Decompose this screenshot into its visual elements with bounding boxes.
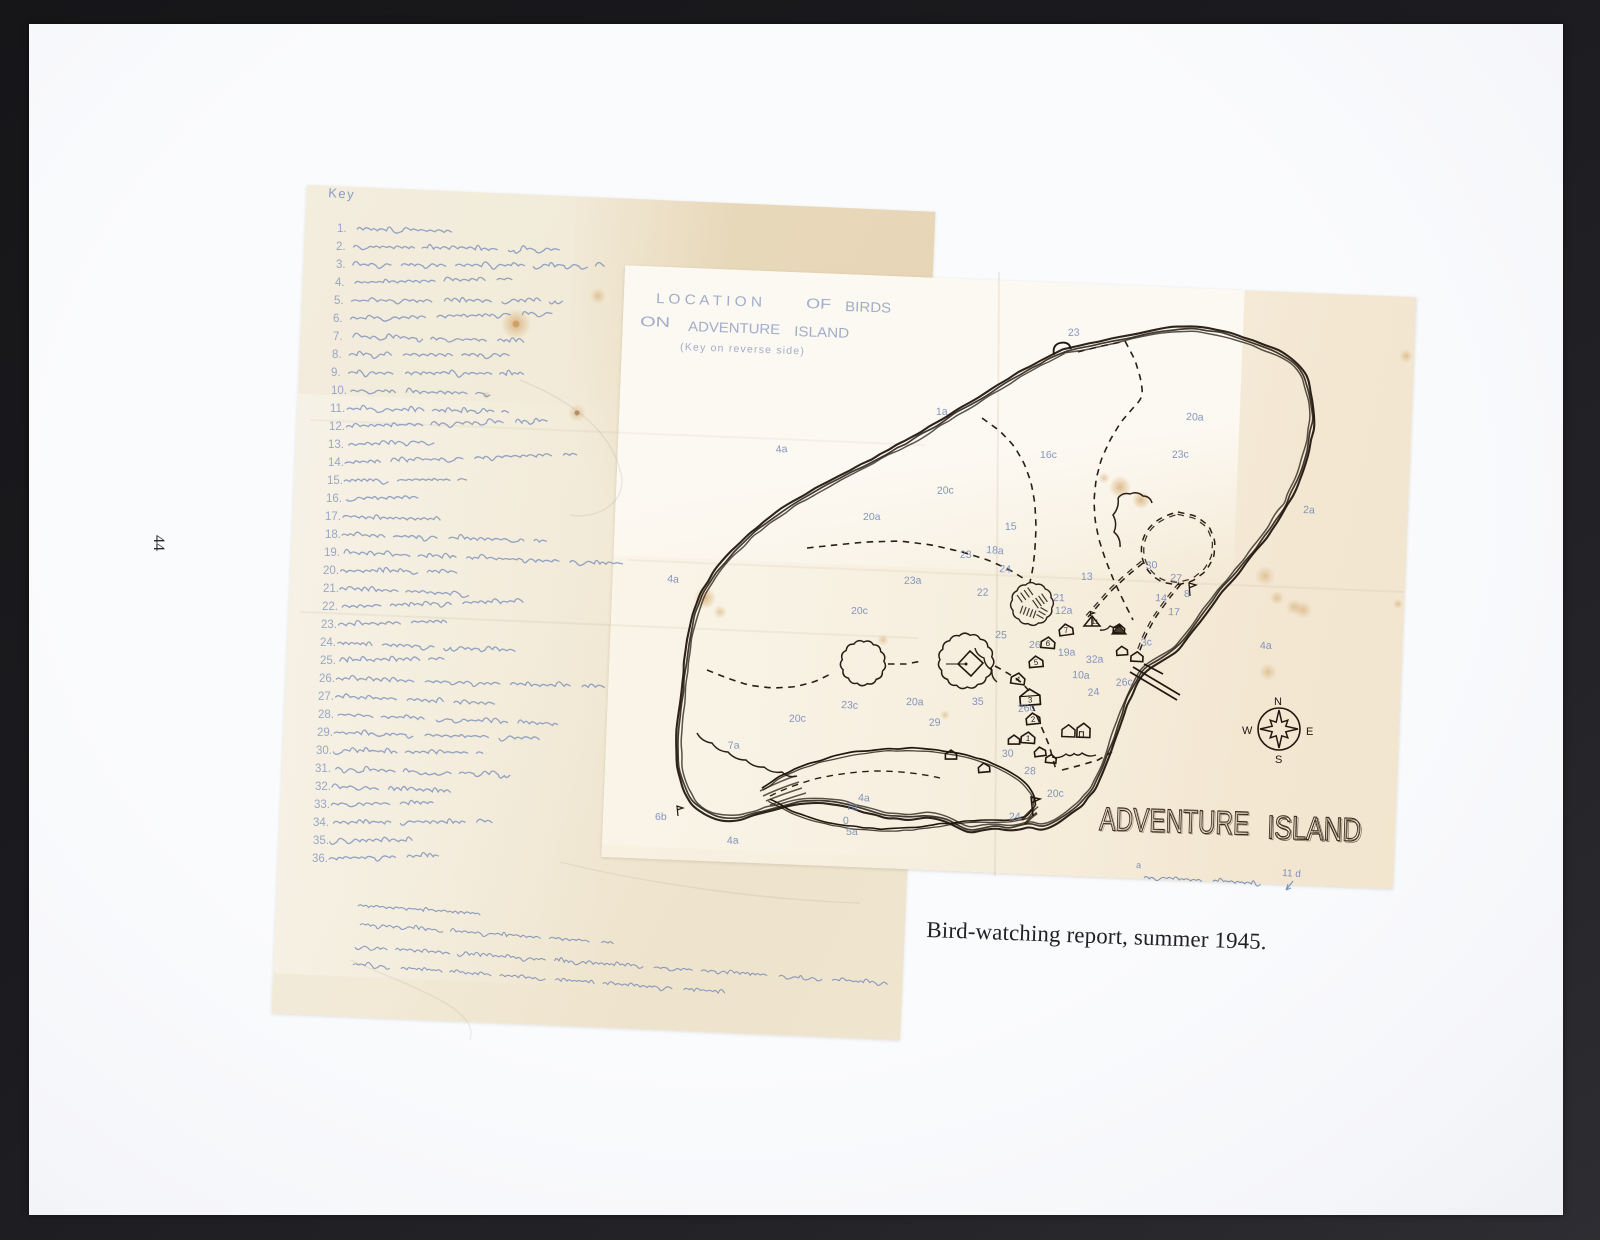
- svg-text:23c: 23c: [841, 699, 859, 712]
- svg-text:1: 1: [1025, 734, 1031, 743]
- svg-text:34.: 34.: [313, 817, 329, 829]
- svg-text:3c: 3c: [1140, 636, 1152, 649]
- svg-text:19.: 19.: [324, 547, 340, 559]
- svg-text:3.: 3.: [336, 259, 346, 271]
- svg-text:20a: 20a: [1186, 411, 1204, 424]
- svg-text:5: 5: [1033, 658, 1039, 667]
- svg-text:7a: 7a: [846, 801, 858, 813]
- svg-text:7: 7: [1063, 626, 1069, 636]
- svg-text:6b: 6b: [655, 811, 667, 823]
- svg-text:20c: 20c: [1047, 788, 1064, 800]
- svg-text:4a: 4a: [1260, 640, 1272, 652]
- svg-text:21: 21: [1053, 592, 1065, 604]
- svg-text:29.: 29.: [317, 727, 333, 739]
- svg-text:15: 15: [1005, 521, 1017, 533]
- svg-text:36.: 36.: [312, 853, 328, 865]
- svg-text:4a: 4a: [667, 573, 680, 586]
- svg-text:24: 24: [999, 563, 1012, 576]
- svg-text:2a: 2a: [1303, 504, 1315, 516]
- svg-text:17: 17: [1168, 606, 1180, 619]
- svg-text:24.: 24.: [320, 637, 336, 649]
- svg-text:30.: 30.: [316, 745, 332, 757]
- svg-text:20a: 20a: [906, 696, 924, 708]
- svg-text:11.: 11.: [330, 403, 345, 415]
- svg-text:31.: 31.: [315, 763, 331, 775]
- svg-text:8.: 8.: [332, 349, 342, 361]
- svg-text:32a: 32a: [1086, 653, 1104, 666]
- svg-text:ISLAND: ISLAND: [794, 323, 850, 341]
- svg-text:7a: 7a: [728, 739, 740, 752]
- svg-text:ISLAND: ISLAND: [1268, 810, 1363, 850]
- svg-text:21.: 21.: [323, 583, 339, 595]
- svg-text:26c: 26c: [1116, 676, 1134, 689]
- svg-text:5a: 5a: [846, 826, 858, 838]
- svg-text:12.: 12.: [329, 421, 345, 433]
- svg-text:14: 14: [1155, 592, 1168, 605]
- svg-text:ADVENTURE: ADVENTURE: [1100, 801, 1251, 843]
- svg-text:30: 30: [1002, 748, 1014, 760]
- svg-text:28: 28: [1024, 765, 1036, 777]
- svg-text:35.: 35.: [313, 835, 329, 847]
- svg-text:26c: 26c: [1017, 702, 1035, 715]
- svg-text:20c: 20c: [937, 484, 954, 497]
- svg-text:(Key on reverse side): (Key on reverse side): [680, 341, 805, 357]
- svg-text:26: 26: [1029, 639, 1041, 651]
- svg-text:2: 2: [1030, 715, 1036, 724]
- svg-text:32.: 32.: [315, 781, 331, 793]
- svg-text:11 d: 11 d: [1282, 868, 1301, 880]
- svg-text:7.: 7.: [333, 331, 343, 343]
- svg-text:18.: 18.: [325, 529, 341, 541]
- svg-text:25: 25: [995, 629, 1007, 641]
- svg-text:33.: 33.: [314, 799, 330, 811]
- svg-text:OF: OF: [806, 295, 832, 312]
- svg-text:16c: 16c: [1040, 449, 1057, 461]
- svg-text:4: 4: [1015, 675, 1021, 685]
- svg-text:23a: 23a: [904, 575, 922, 587]
- svg-text:25.: 25.: [320, 655, 336, 667]
- svg-text:19a: 19a: [1058, 646, 1076, 659]
- svg-text:ADVENTURE: ADVENTURE: [688, 318, 781, 337]
- svg-text:10a: 10a: [1072, 669, 1090, 682]
- svg-text:22.: 22.: [322, 601, 338, 613]
- svg-text:24: 24: [1009, 811, 1021, 823]
- svg-text:27: 27: [1170, 572, 1183, 585]
- svg-text:1.: 1.: [337, 223, 347, 235]
- svg-text:6.: 6.: [333, 313, 343, 325]
- svg-text:BIRDS: BIRDS: [845, 298, 892, 316]
- svg-text:23: 23: [1068, 327, 1080, 339]
- svg-text:23: 23: [960, 549, 972, 561]
- svg-text:23.: 23.: [321, 619, 337, 631]
- svg-text:10.: 10.: [331, 385, 347, 397]
- svg-text:5.: 5.: [334, 295, 344, 307]
- svg-text:8: 8: [1184, 588, 1190, 600]
- svg-text:23c: 23c: [1172, 448, 1189, 461]
- svg-text:30: 30: [1145, 559, 1158, 572]
- svg-text:24: 24: [1087, 686, 1100, 699]
- svg-text:4a: 4a: [775, 443, 788, 456]
- svg-text:13: 13: [1081, 571, 1093, 583]
- svg-text:Key: Key: [328, 185, 356, 202]
- svg-text:16.: 16.: [326, 493, 342, 505]
- svg-text:20c: 20c: [789, 713, 806, 725]
- svg-text:29: 29: [929, 716, 941, 729]
- svg-text:20.: 20.: [323, 565, 339, 577]
- svg-text:S: S: [1275, 754, 1282, 766]
- svg-text:35: 35: [972, 696, 984, 708]
- svg-text:ON: ON: [640, 313, 671, 330]
- svg-text:4a: 4a: [858, 792, 870, 804]
- svg-text:27.: 27.: [318, 691, 334, 703]
- svg-text:2.: 2.: [336, 241, 346, 253]
- svg-text:L O C A T I O N: L O C A T I O N: [656, 290, 762, 310]
- svg-text:20c: 20c: [851, 605, 868, 617]
- svg-text:20a: 20a: [863, 511, 881, 523]
- svg-text:14.: 14.: [328, 457, 344, 469]
- svg-text:N: N: [1274, 696, 1282, 708]
- svg-text:E: E: [1306, 726, 1313, 738]
- svg-text:17.: 17.: [325, 511, 341, 523]
- svg-text:9.: 9.: [331, 367, 341, 379]
- svg-text:11: 11: [1092, 619, 1099, 626]
- svg-text:a: a: [1136, 860, 1142, 870]
- svg-text:26.: 26.: [319, 673, 335, 685]
- svg-text:22: 22: [977, 586, 989, 599]
- svg-text:18a: 18a: [986, 544, 1004, 557]
- svg-text:12a: 12a: [1055, 605, 1073, 617]
- svg-text:6: 6: [1045, 639, 1051, 648]
- svg-text:1a: 1a: [936, 406, 948, 418]
- svg-text:28.: 28.: [318, 709, 334, 721]
- svg-text:4.: 4.: [335, 277, 345, 289]
- svg-text:15.: 15.: [327, 475, 343, 487]
- svg-text:W: W: [1242, 725, 1253, 737]
- svg-text:4a: 4a: [727, 835, 739, 847]
- svg-text:13.: 13.: [328, 439, 344, 451]
